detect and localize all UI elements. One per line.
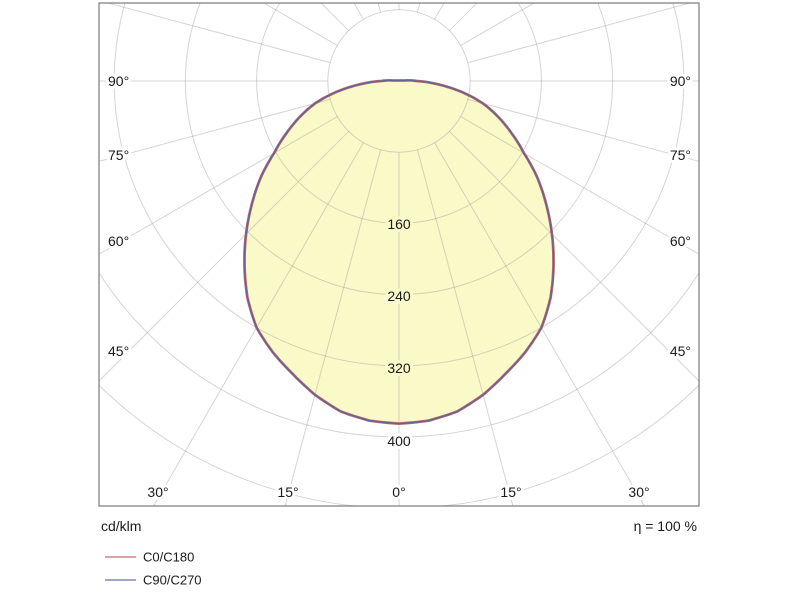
efficiency-label: η = 100 % (634, 518, 697, 534)
angle-label-left-45: 45° (108, 343, 129, 359)
photometric-diagram: 90° 75° 60° 45° 90° 75° 60° 45° 30° 15° … (0, 0, 800, 600)
angle-label-bottom-15l: 15° (277, 484, 298, 500)
angle-label-right-75: 75° (670, 147, 691, 163)
ring-label-240: 240 (387, 288, 411, 304)
legend: C0/C180 C90/C270 (105, 550, 202, 588)
ring-label-400: 400 (387, 433, 411, 449)
unit-label: cd/klm (101, 518, 141, 534)
ring-label-320: 320 (387, 360, 411, 376)
grid-spoke-135 (449, 0, 800, 31)
angle-label-bottom-15r: 15° (500, 484, 521, 500)
angle-label-right-90: 90° (670, 73, 691, 89)
grid-spoke-105 (468, 0, 800, 63)
grid-spoke-120 (461, 0, 800, 45)
grid-spoke-225 (0, 0, 349, 31)
grid-spoke-240 (0, 0, 337, 45)
angle-label-right-60: 60° (670, 233, 691, 249)
legend-label-c0-c180: C0/C180 (143, 550, 194, 565)
angle-label-bottom-30r: 30° (628, 484, 649, 500)
angle-label-right-45: 45° (670, 343, 691, 359)
angle-label-left-60: 60° (108, 233, 129, 249)
angle-label-left-90: 90° (108, 73, 129, 89)
angle-label-bottom-30l: 30° (147, 484, 168, 500)
angle-label-left-75: 75° (108, 147, 129, 163)
ring-label-160: 160 (387, 216, 411, 232)
grid-spoke-255 (0, 0, 330, 63)
angle-label-bottom-0: 0° (392, 484, 405, 500)
polar-intensity-chart: 90° 75° 60° 45° 90° 75° 60° 45° 30° 15° … (0, 0, 800, 600)
legend-label-c90-c270: C90/C270 (143, 573, 202, 588)
